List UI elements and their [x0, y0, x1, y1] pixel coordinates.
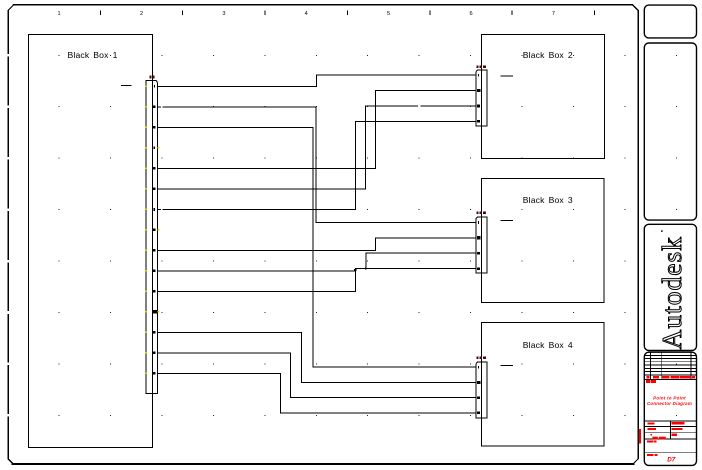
svg-text:4: 4 — [305, 11, 308, 17]
svg-text:1: 1 — [58, 11, 61, 17]
svg-text:Connector Diagram: Connector Diagram — [647, 401, 692, 406]
svg-text:Black Box 3: Black Box 3 — [523, 195, 573, 205]
svg-text:2: 2 — [140, 11, 143, 17]
svg-text:Black Box 1: Black Box 1 — [68, 50, 118, 60]
svg-text:Black Box 4: Black Box 4 — [523, 340, 573, 350]
svg-text:D7: D7 — [667, 456, 675, 463]
svg-text:7: 7 — [552, 11, 555, 17]
svg-text:6: 6 — [469, 11, 472, 17]
svg-text:3: 3 — [222, 11, 225, 17]
svg-text:Black Box 2: Black Box 2 — [523, 50, 573, 60]
svg-text:5: 5 — [387, 11, 390, 17]
svg-text:Autodesk: Autodesk — [656, 236, 687, 349]
